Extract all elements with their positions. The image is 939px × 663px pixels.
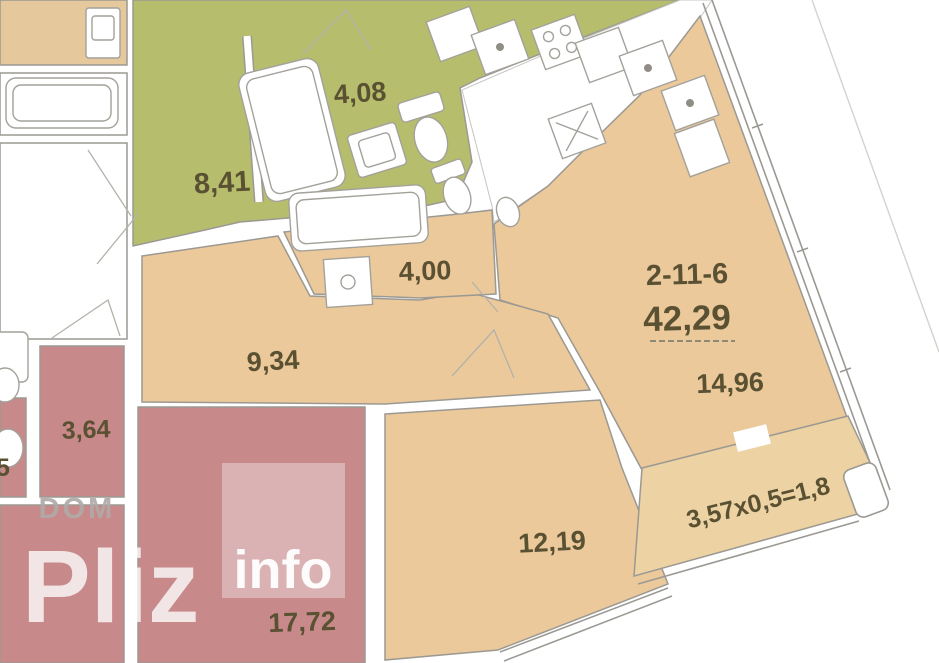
apartment-number-label: 2-11-6 [646,258,729,292]
shower-tray-icon [323,256,372,307]
total-area-label: 42,29 [643,298,732,339]
neighbor-room-area-label: 17,72 [268,606,337,638]
neighbor-partial-label: 5 [0,454,10,482]
floor-plan-page: 8,41 4,08 4,00 9,34 3,64 5 2-11-6 42,29 … [0,0,939,663]
bathtub-icon [288,184,429,251]
watermark-dom: DOM [39,493,116,525]
bathroom-area-label: 4,00 [398,255,452,287]
watermark-info: info [234,540,333,600]
bathroom-small-area-label: 4,08 [333,76,388,110]
watermark-pliz: Pliz [22,529,199,644]
closet-area-label: 3,64 [61,415,111,445]
neighbor-hall [0,143,127,339]
bathtub-inner [13,85,111,121]
corridor-area-label: 9,34 [246,345,300,378]
living-area-label: 14,96 [696,367,765,399]
bedroom-area-label: 12,19 [518,525,587,558]
floor-plan-svg: 8,41 4,08 4,00 9,34 3,64 5 2-11-6 42,29 … [0,0,939,663]
hallway-area-label: 8,41 [193,166,251,201]
sink-basin-icon [92,16,114,40]
faint-balcony-line [812,0,939,352]
